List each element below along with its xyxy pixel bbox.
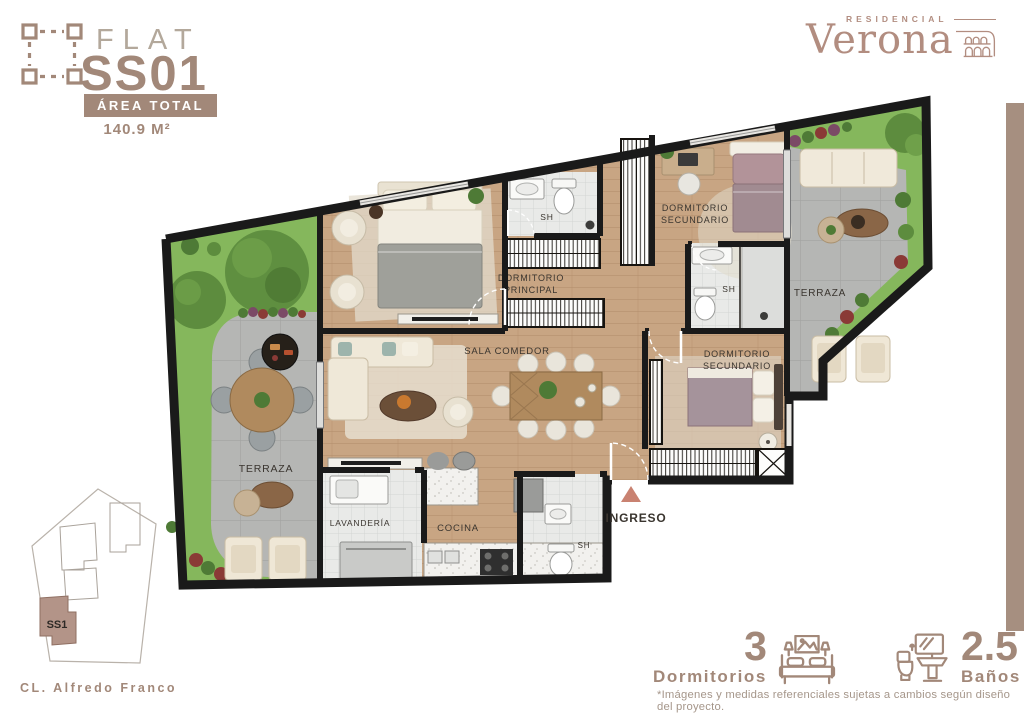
accent-side-bar [1006,103,1024,631]
room-label-dormitorio-sec1-2: SECUNDARIO [661,215,729,225]
room-label-cocina: COCINA [437,523,479,534]
bedrooms-label: Dormitorios [653,667,767,687]
area-value: 140.9 M² [84,121,190,138]
bathroom-icon [894,633,952,687]
stat-bathrooms: 2.5 Baños [894,631,1021,687]
left-terrace: TERRAZA [166,212,320,584]
room-label-lavanderia: LAVANDERÍA [330,518,391,528]
bathrooms-count: 2.5 [961,631,1021,663]
unit-outline-icon [20,22,84,86]
room-label-sh3: SH [578,541,591,550]
room-label-terraza-right: TERRAZA [794,288,846,299]
arena-arches-icon [956,27,996,59]
bathrooms-label: Baños [961,667,1021,687]
entry-arrow-icon [621,486,641,502]
room-label-dormitorio-sec2-1: DORMITORIO [704,349,770,359]
secondary-bedroom-right: DORMITORIO SECUNDARIO [655,349,783,451]
stat-bedrooms: 3 Dormitorios [653,631,838,687]
entry-label: INGRESO [606,511,667,525]
bed-icon [776,635,838,687]
entry-marker: INGRESO [606,486,667,525]
brand-logo: RESIDENCIAL Verona [806,14,996,60]
area-total-chip: ÁREA TOTAL [84,94,217,117]
room-label-dormitorio-principal-2: PRINCIPAL [504,285,558,295]
site-unit-label: SS1 [47,619,68,631]
brand-rule [954,19,996,20]
brand-name: Verona [806,20,954,60]
flyer-page: TERRAZA [0,0,1024,717]
disclaimer-text: *Imágenes y medidas referenciales sujeta… [657,689,1024,713]
room-label-sh2: SH [722,284,735,294]
street-label: CL. Alfredo Franco [20,681,177,695]
unit-stats: 3 Dormitorios [653,631,1021,687]
right-terrace: TERRAZA [787,101,928,396]
room-label-sh1: SH [540,212,553,222]
room-label-sala-comedor: SALA COMEDOR [464,346,550,357]
bedrooms-count: 3 [744,631,767,663]
site-key-plan: SS1 CL. Alfredo Franco [20,489,177,695]
room-label-terraza-left: TERRAZA [239,463,294,475]
secondary-bathroom: SH [692,246,786,330]
room-label-dormitorio-sec1-1: DORMITORIO [662,203,728,213]
bbq-grill-icon [262,334,298,370]
room-label-dormitorio-sec2-2: SECUNDARIO [703,361,771,371]
